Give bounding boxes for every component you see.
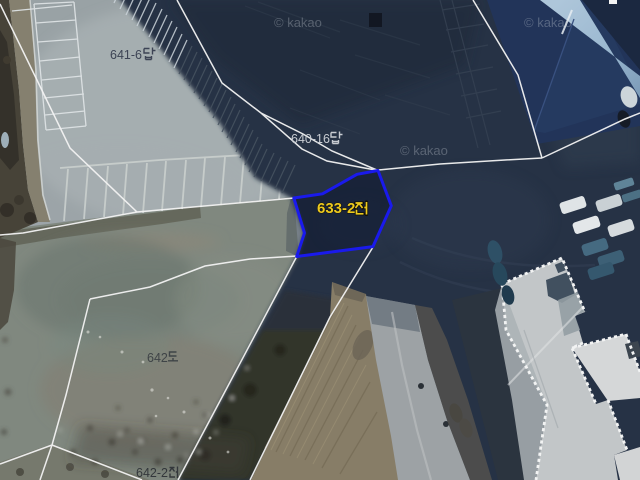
svg-text:© kakao: © kakao: [274, 15, 322, 30]
svg-text:642: 642: [147, 351, 168, 365]
svg-text:640-16: 640-16: [291, 132, 330, 146]
svg-text:641-6: 641-6: [110, 48, 142, 62]
svg-text:633-2: 633-2: [317, 200, 355, 217]
svg-text:© kakao: © kakao: [400, 143, 448, 158]
svg-text:© kakao: © kakao: [524, 15, 572, 30]
svg-text:642-2: 642-2: [136, 466, 168, 480]
